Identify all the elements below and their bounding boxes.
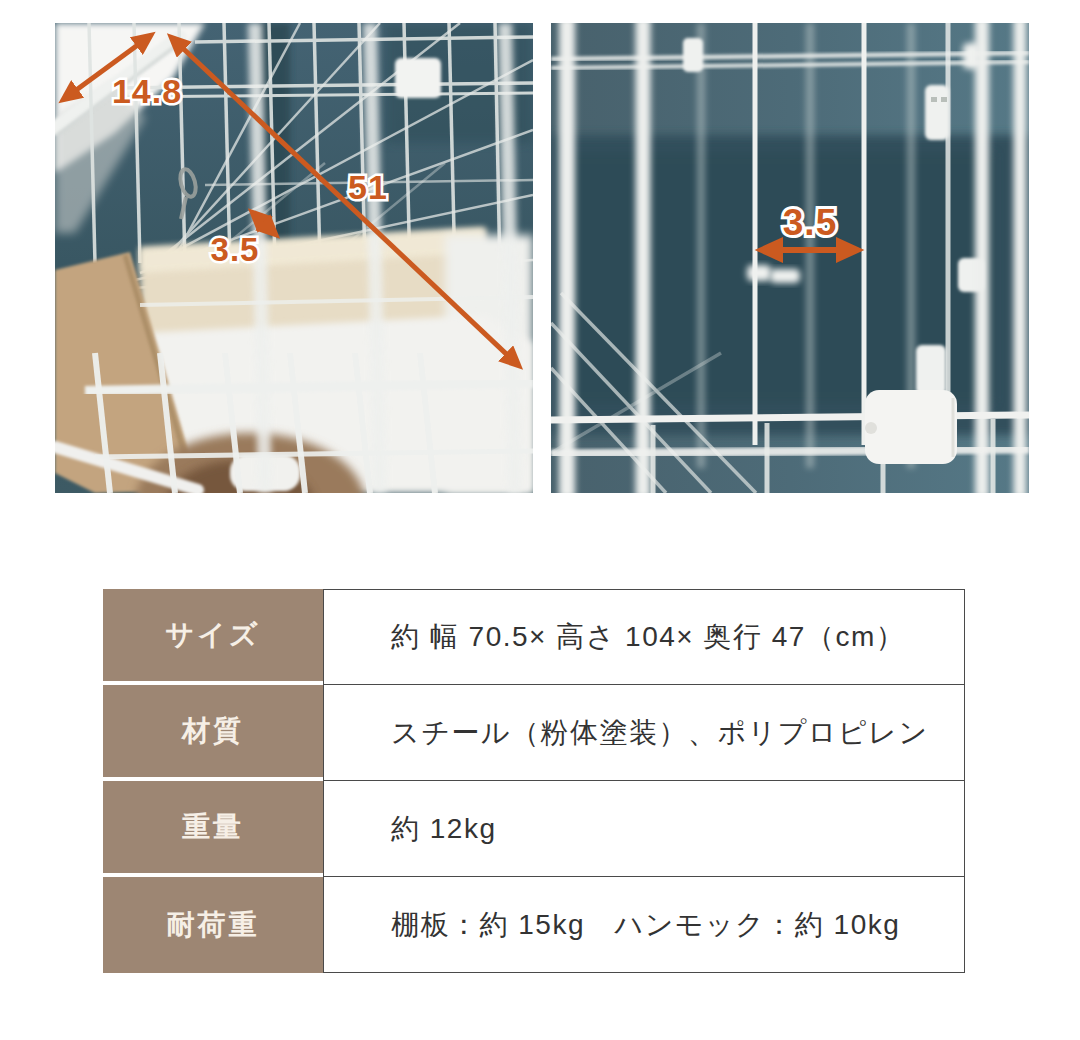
- spec-value-weight: 約 12kg: [323, 781, 965, 877]
- photo-wire-spacing-art: 3.5: [551, 23, 1029, 493]
- photo-cage-hammock-art: 14.8 51 3.5: [55, 23, 533, 493]
- photo-wire-spacing: 3.5: [551, 23, 1029, 493]
- spec-label-weight: 重量: [103, 781, 323, 873]
- wire-clip: [395, 58, 441, 98]
- spec-value-material: スチール（粉体塗装）、ポリプロピレン: [323, 685, 965, 781]
- spec-row-material: 材質 スチール（粉体塗装）、ポリプロピレン: [103, 685, 965, 781]
- spec-value-size: 約 幅 70.5× 高さ 104× 奥行 47（cm）: [323, 589, 965, 685]
- spec-label-material: 材質: [103, 685, 323, 777]
- spec-row-size: サイズ 約 幅 70.5× 高さ 104× 奥行 47（cm）: [103, 589, 965, 685]
- product-spec-page: 14.8 51 3.5: [0, 0, 1080, 1040]
- spec-row-load-capacity: 耐荷重 棚板：約 15kg ハンモック：約 10kg: [103, 877, 965, 973]
- dimension-label-3-5: 3.5: [211, 231, 260, 268]
- spec-row-weight: 重量 約 12kg: [103, 781, 965, 877]
- dimension-label-14-8: 14.8: [112, 72, 182, 110]
- spec-table: サイズ 約 幅 70.5× 高さ 104× 奥行 47（cm） 材質 スチール（…: [103, 589, 965, 973]
- photo-cage-hammock: 14.8 51 3.5: [55, 23, 533, 493]
- corner-connector: [865, 390, 957, 464]
- spec-value-load-capacity: 棚板：約 15kg ハンモック：約 10kg: [323, 877, 965, 973]
- spec-label-load-capacity: 耐荷重: [103, 877, 323, 973]
- dimension-label-3-5: 3.5: [783, 202, 837, 243]
- spec-label-size: サイズ: [103, 589, 323, 681]
- dimension-label-51: 51: [348, 168, 388, 206]
